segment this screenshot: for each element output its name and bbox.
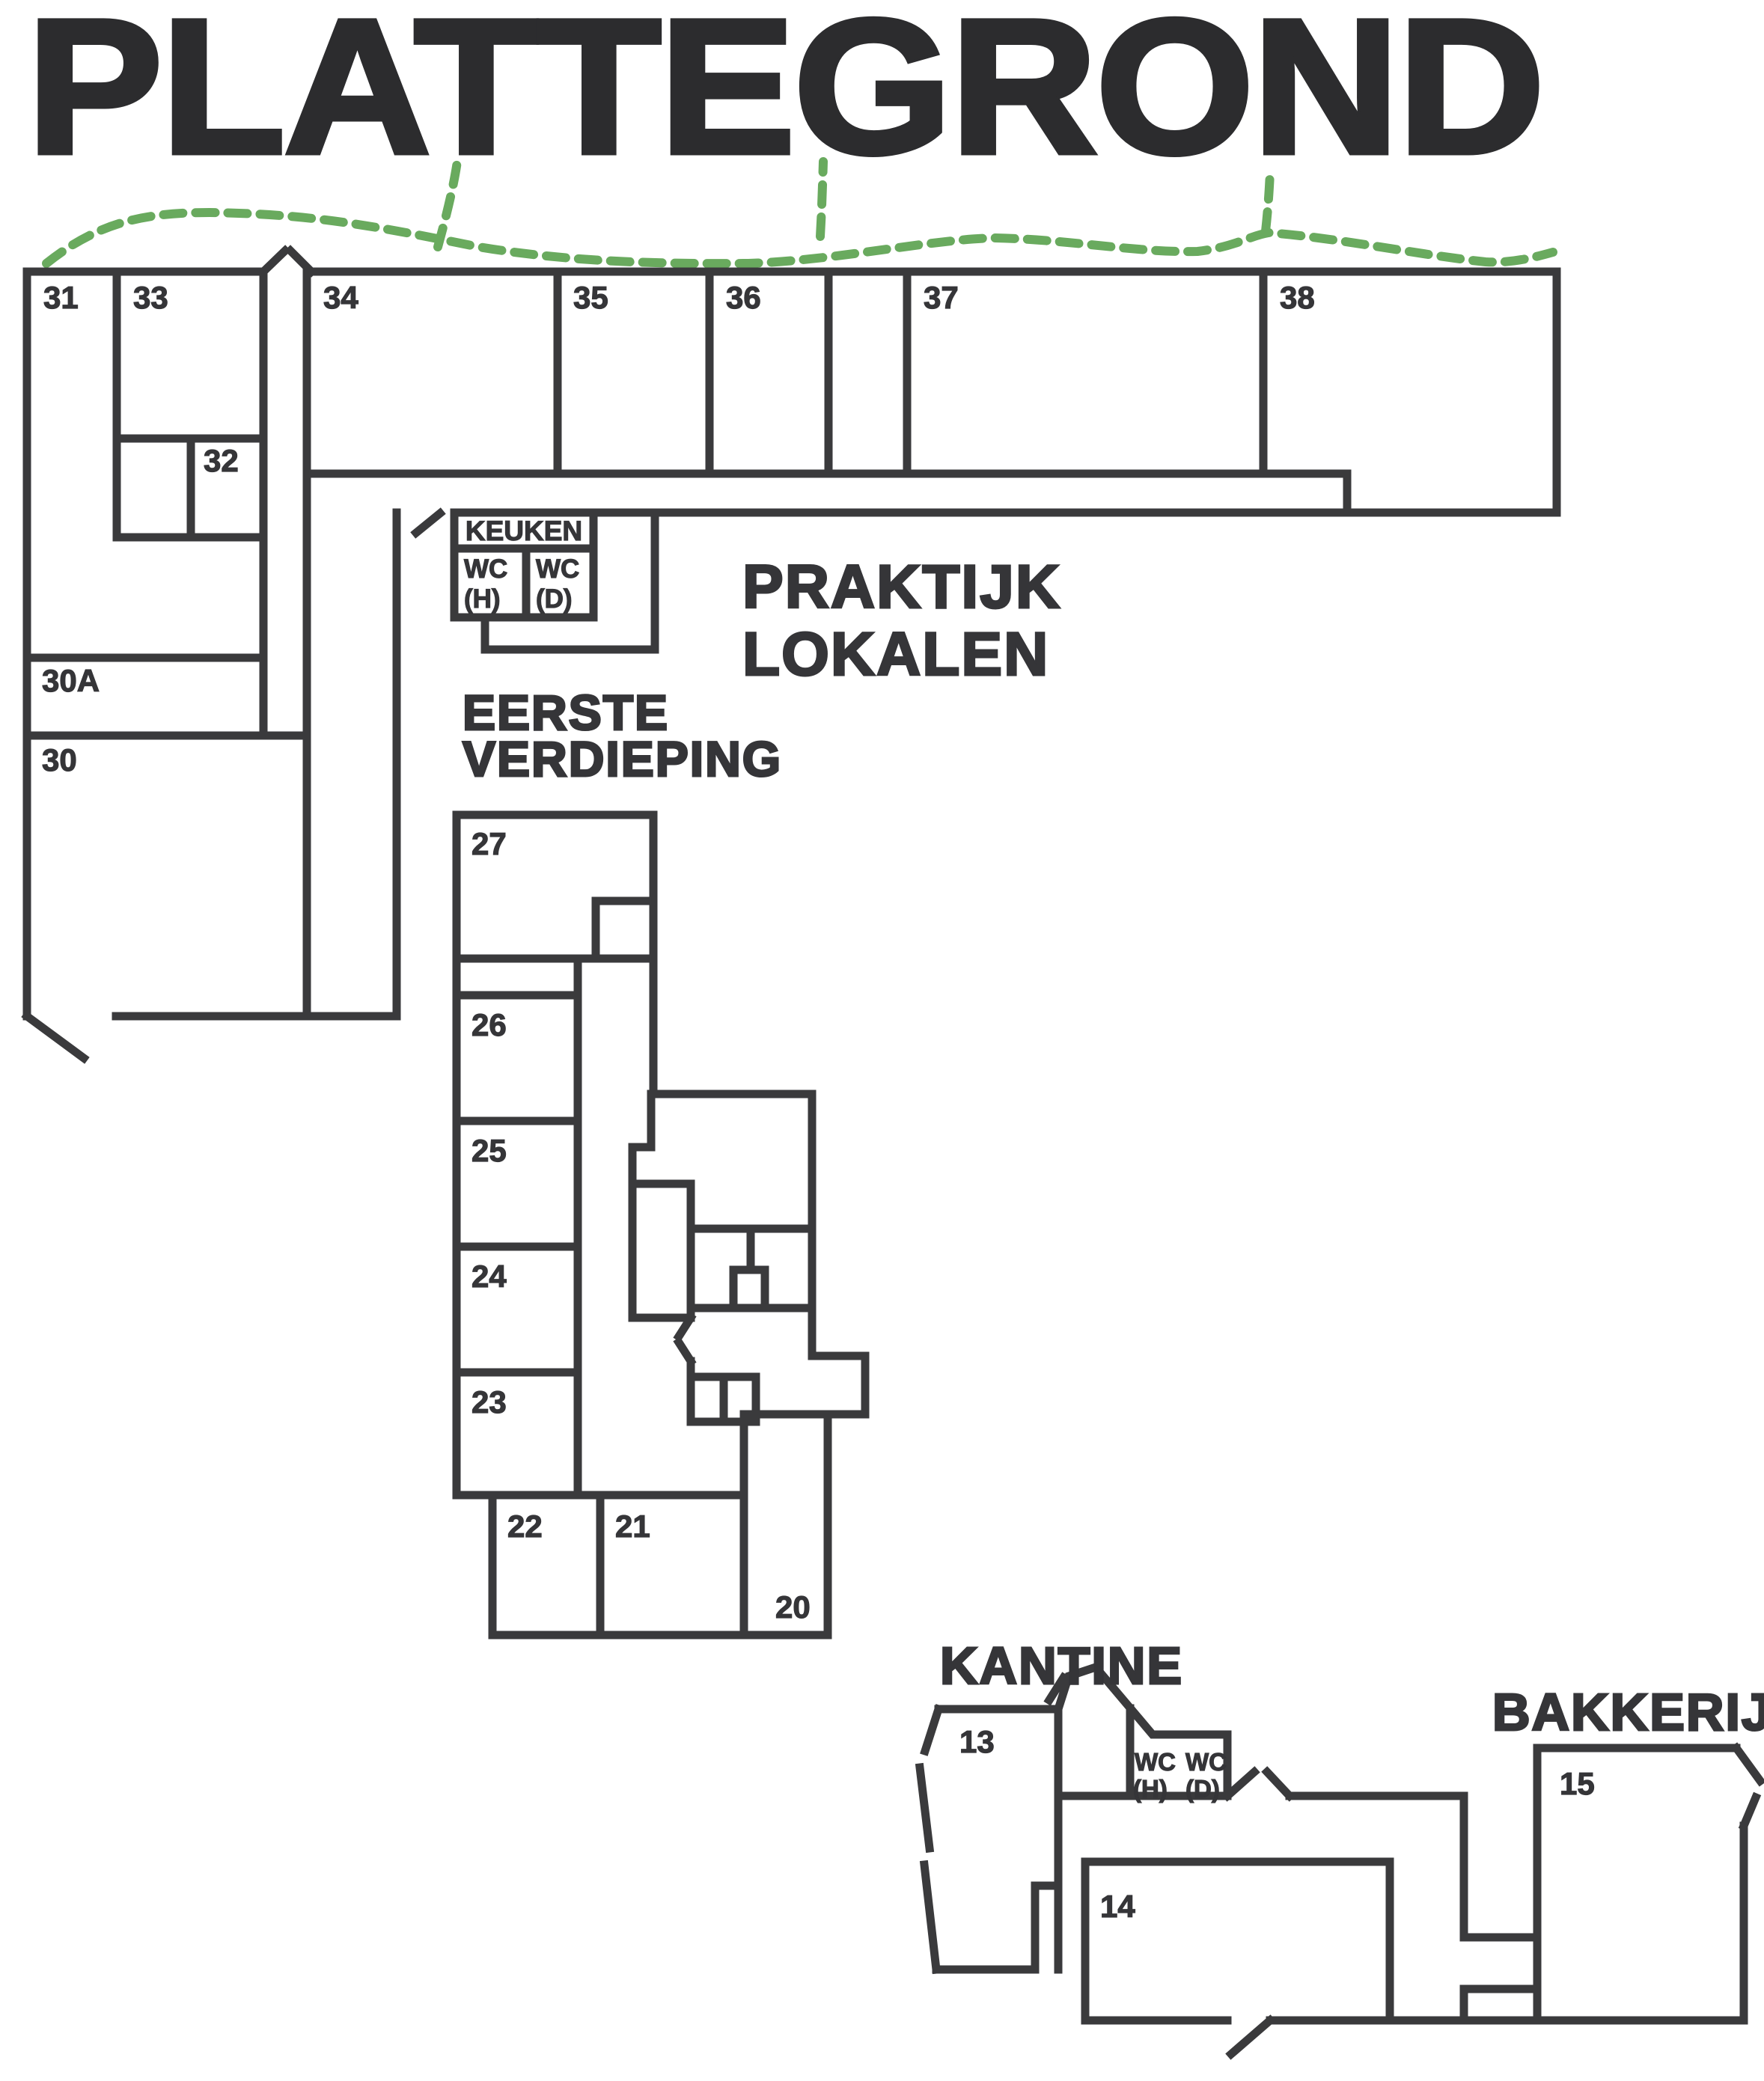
section-heading-praktijk-lokalen: PRAKTIJK	[742, 553, 1061, 621]
room-label-30: 30	[42, 742, 77, 777]
section-heading-praktijk-lokalen: LOKALEN	[742, 620, 1049, 688]
facility-label-wc-d-line1: WC	[536, 554, 579, 584]
room-label-36: 36	[726, 280, 761, 315]
room-label-23: 23	[471, 1384, 507, 1420]
classroom-dividers	[307, 272, 1263, 474]
facility-label-wc-d-line2: (D)	[536, 584, 573, 614]
facility-label-kantine-wc-d-line1: WC	[1185, 1748, 1227, 1776]
room-label-14: 14	[1100, 1889, 1135, 1924]
labels-layer: PRAKTIJKLOKALENEERSTEVERDIEPINGKANTINEBA…	[42, 280, 1764, 1924]
section-heading-eerste-verdieping: VERDIEPING	[463, 731, 782, 786]
room14-and-bottom-walls	[1085, 1796, 1744, 2054]
room-label-30A: 30A	[42, 663, 100, 698]
page-title: PLATTEGROND	[27, 0, 1543, 194]
room-label-37: 37	[924, 280, 959, 315]
room-label-31: 31	[43, 280, 79, 315]
right-complex-walls	[632, 1094, 865, 1635]
room-label-25: 25	[471, 1133, 507, 1168]
room-label-24: 24	[471, 1259, 507, 1294]
facility-label-keuken: KEUKEN	[466, 516, 582, 546]
room-label-26: 26	[471, 1007, 507, 1042]
section-heading-bakkerij: BAKKERIJ	[1492, 1683, 1764, 1741]
room-label-33: 33	[133, 280, 168, 315]
room-label-20: 20	[775, 1589, 811, 1625]
room-label-21: 21	[615, 1509, 650, 1544]
room-label-15: 15	[1560, 1766, 1595, 1801]
facility-label-kantine-wc-d-line2: (D)	[1185, 1775, 1220, 1803]
room-label-32: 32	[204, 443, 239, 478]
facility-label-wc-h-line1: WC	[464, 554, 507, 584]
section-heading-kantine: KANTINE	[940, 1637, 1183, 1695]
room-label-34: 34	[323, 280, 358, 315]
facility-label-wc-h-line2: (H)	[464, 584, 501, 614]
floor-plan-svg: PLATTEGROND PRAKTIJKLOKALENEERSTEVERDIEP…	[0, 0, 1764, 2081]
corridor-walls	[307, 474, 1557, 513]
room-label-38: 38	[1280, 280, 1315, 315]
route-wave-line	[46, 213, 1553, 263]
facility-label-kantine-wc-h-line1: WC	[1135, 1748, 1176, 1776]
facility-label-kantine-wc-h-line2: (H)	[1133, 1775, 1168, 1803]
room-label-35: 35	[573, 280, 608, 315]
room-label-22: 22	[507, 1509, 543, 1544]
room-label-13: 13	[959, 1724, 995, 1759]
room-label-27: 27	[471, 826, 507, 861]
